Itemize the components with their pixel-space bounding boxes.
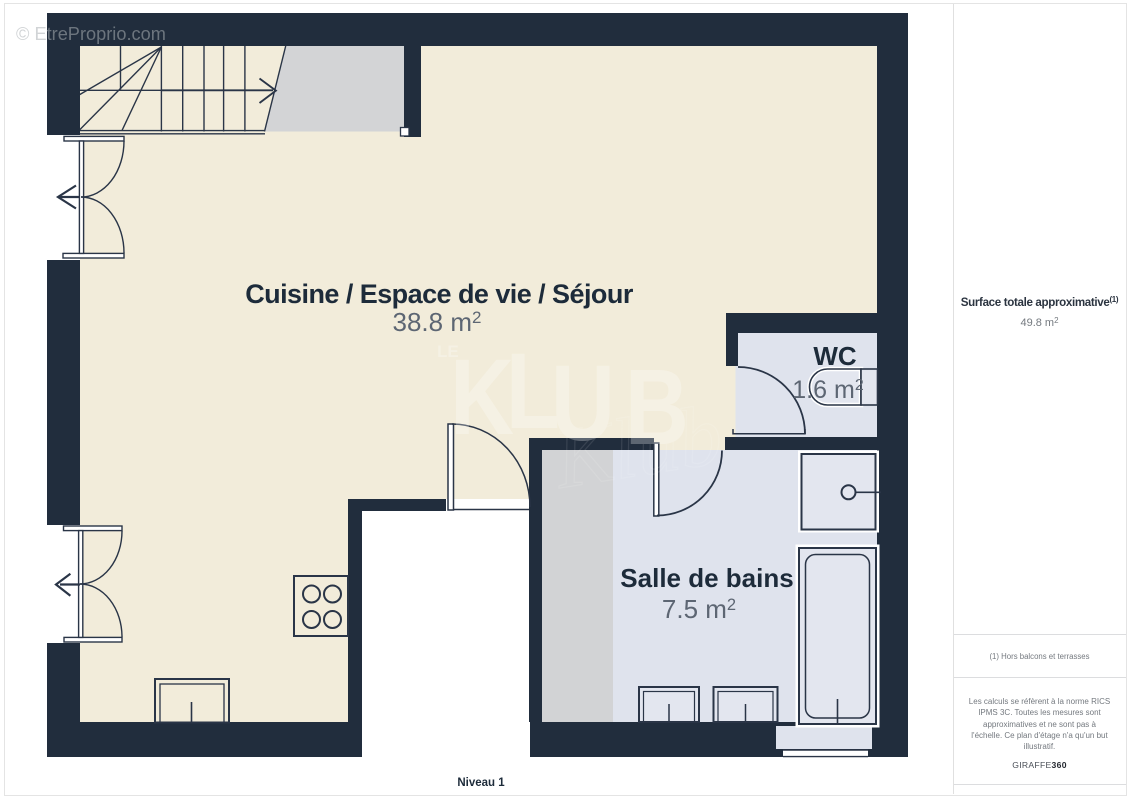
svg-text:Cuisine / Espace de vie / Séjo: Cuisine / Espace de vie / Séjour	[245, 279, 634, 309]
svg-text:7.5 m2: 7.5 m2	[662, 594, 736, 624]
svg-text:WC: WC	[813, 341, 857, 371]
svg-text:K: K	[450, 337, 514, 457]
svg-text:Salle de bains: Salle de bains	[620, 563, 793, 593]
svg-text:Niveau 1: Niveau 1	[457, 777, 505, 789]
svg-text:1.6 m2: 1.6 m2	[792, 376, 864, 404]
svg-text:38.8 m2: 38.8 m2	[393, 307, 482, 337]
svg-text:© EtreProprio.com: © EtreProprio.com	[16, 24, 166, 44]
